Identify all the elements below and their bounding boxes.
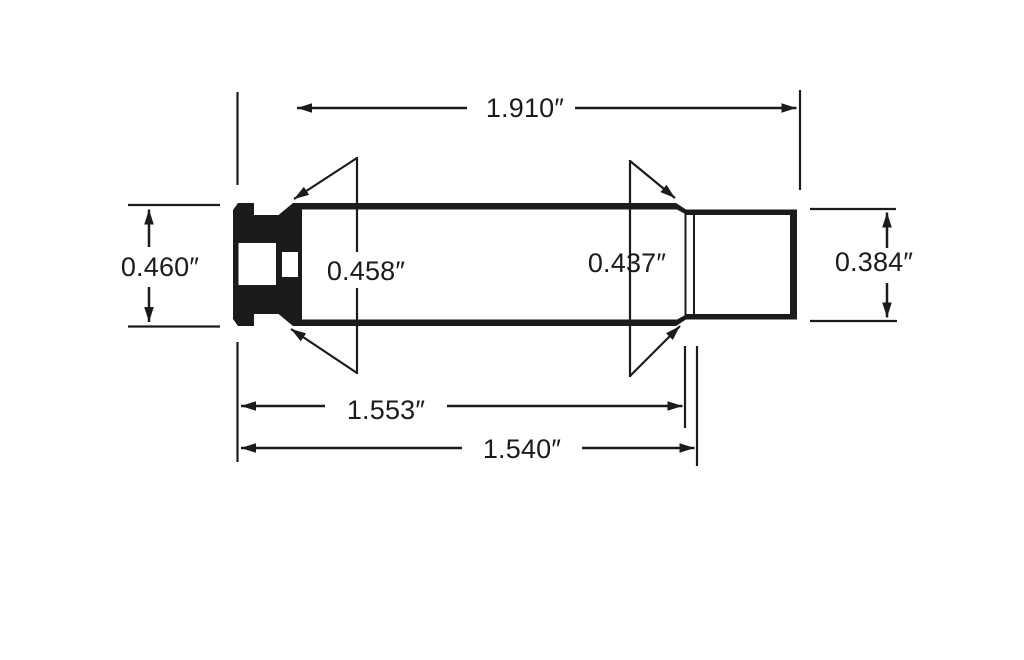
leader-arrow-top	[630, 161, 675, 198]
leader-arrow-top	[294, 158, 357, 199]
diagram-canvas: 1.910″ 0.460″ 0.458″ 0.437″	[0, 0, 1024, 660]
dimension-rim-diameter: 0.460″	[121, 205, 220, 327]
cartridge-case-cross-section	[233, 203, 797, 326]
dim-label-case-length: 1.540″	[483, 434, 562, 464]
cartridge-dimension-diagram: 1.910″ 0.460″ 0.458″ 0.437″	[0, 0, 1024, 660]
leader-arrow-bottom	[291, 329, 357, 373]
dimension-overall-length: 1.910″	[238, 90, 801, 190]
dimension-neck-diameter: 0.384″	[810, 209, 913, 321]
primer-pocket	[239, 243, 277, 285]
dim-label-base-diameter: 0.458″	[327, 256, 406, 286]
flash-hole	[282, 252, 298, 277]
dim-label-neck-diameter: 0.384″	[835, 247, 914, 277]
dim-label-shoulder-diameter: 0.437″	[588, 248, 667, 278]
dim-label-rim-diameter: 0.460″	[121, 252, 200, 282]
dimension-length-to-shoulder: 1.553″	[238, 342, 686, 462]
dim-label-overall-length: 1.910″	[486, 93, 565, 123]
leader-arrow-bottom	[630, 326, 680, 376]
dim-label-length-to-shoulder: 1.553″	[347, 395, 426, 425]
